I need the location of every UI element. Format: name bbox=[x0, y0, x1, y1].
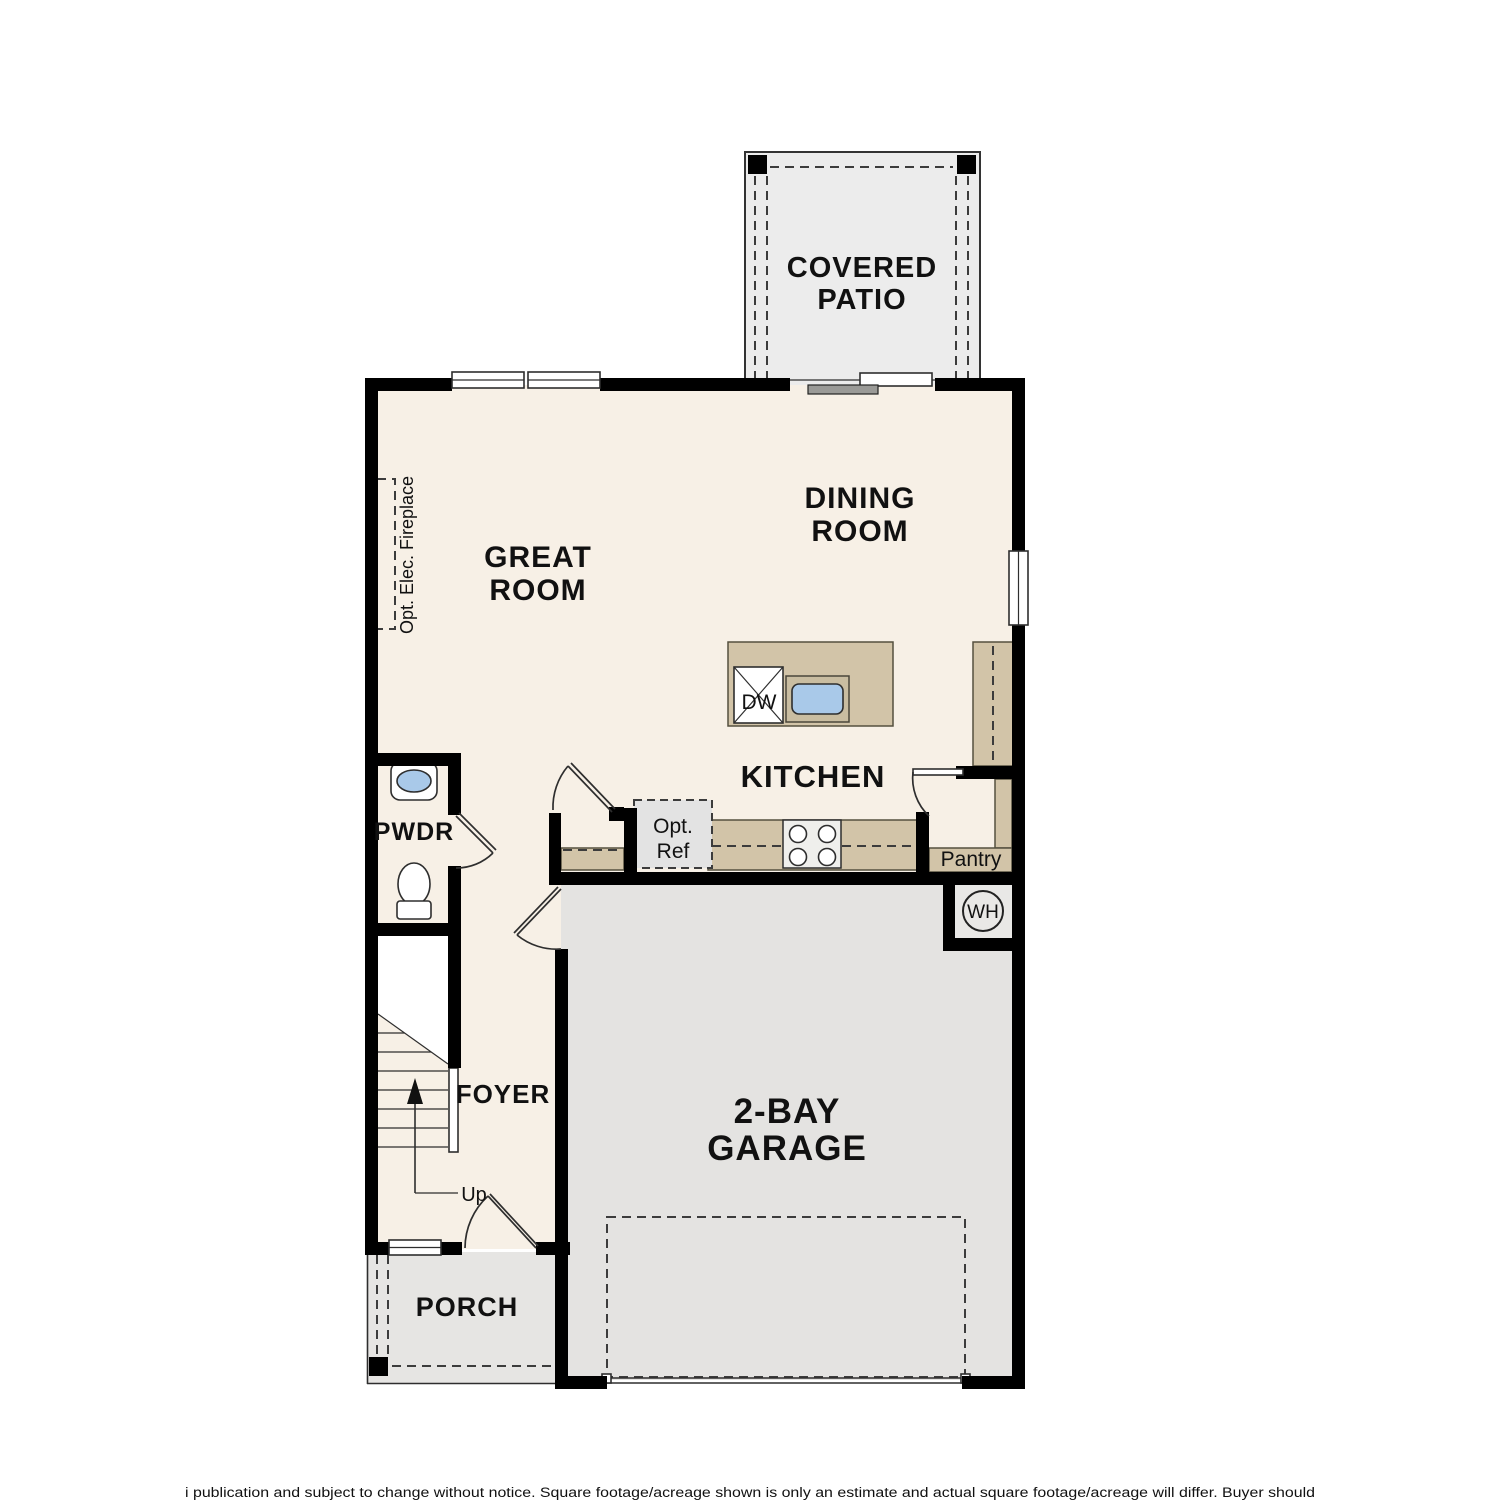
floor-plan-svg: COVERED PATIO DINING ROOM GREAT ROOM KIT… bbox=[0, 0, 1500, 1500]
patio-post-left bbox=[748, 155, 767, 174]
kitchen-label: KITCHEN bbox=[741, 759, 886, 794]
stairs-up-label: Up bbox=[461, 1184, 487, 1206]
kitchen-sink bbox=[792, 684, 843, 714]
great-room-label-1: GREAT bbox=[484, 541, 592, 574]
pwdr-sink bbox=[397, 770, 431, 792]
covered-patio-label-2: PATIO bbox=[817, 284, 906, 316]
disclaimer-text: i publication and subject to change with… bbox=[185, 1485, 1315, 1500]
water-heater-label: WH bbox=[967, 902, 999, 923]
pwdr-label: PWDR bbox=[374, 818, 454, 846]
floor-plan-page: COVERED PATIO DINING ROOM GREAT ROOM KIT… bbox=[0, 0, 1500, 1500]
fireplace-label: Opt. Elec. Fireplace bbox=[397, 476, 417, 634]
porch-label: PORCH bbox=[416, 1292, 519, 1322]
burner bbox=[819, 826, 836, 843]
dining-room-label-2: ROOM bbox=[811, 515, 908, 548]
great-room-label-2: ROOM bbox=[489, 574, 586, 607]
burner bbox=[819, 849, 836, 866]
toilet-bowl bbox=[398, 863, 430, 905]
patio-post-right bbox=[957, 155, 976, 174]
opt-ref-label-1: Opt. bbox=[653, 815, 693, 838]
dishwasher-label: DW bbox=[742, 691, 777, 714]
pantry-shelf-right bbox=[995, 779, 1012, 848]
burner bbox=[790, 826, 807, 843]
dining-room-label-1: DINING bbox=[805, 482, 916, 515]
closet-shelf bbox=[561, 848, 624, 870]
toilet-tank bbox=[397, 901, 431, 919]
foyer-label: FOYER bbox=[456, 1079, 551, 1109]
porch-post bbox=[369, 1357, 388, 1376]
garage-label-1: 2-BAY bbox=[734, 1092, 841, 1131]
burner bbox=[790, 849, 807, 866]
garage-label-2: GARAGE bbox=[707, 1129, 867, 1168]
right-counter bbox=[973, 642, 1013, 766]
covered-patio-label-1: COVERED bbox=[787, 252, 937, 284]
pantry-label: Pantry bbox=[941, 848, 1002, 871]
opt-ref-label-2: Ref bbox=[657, 840, 690, 863]
